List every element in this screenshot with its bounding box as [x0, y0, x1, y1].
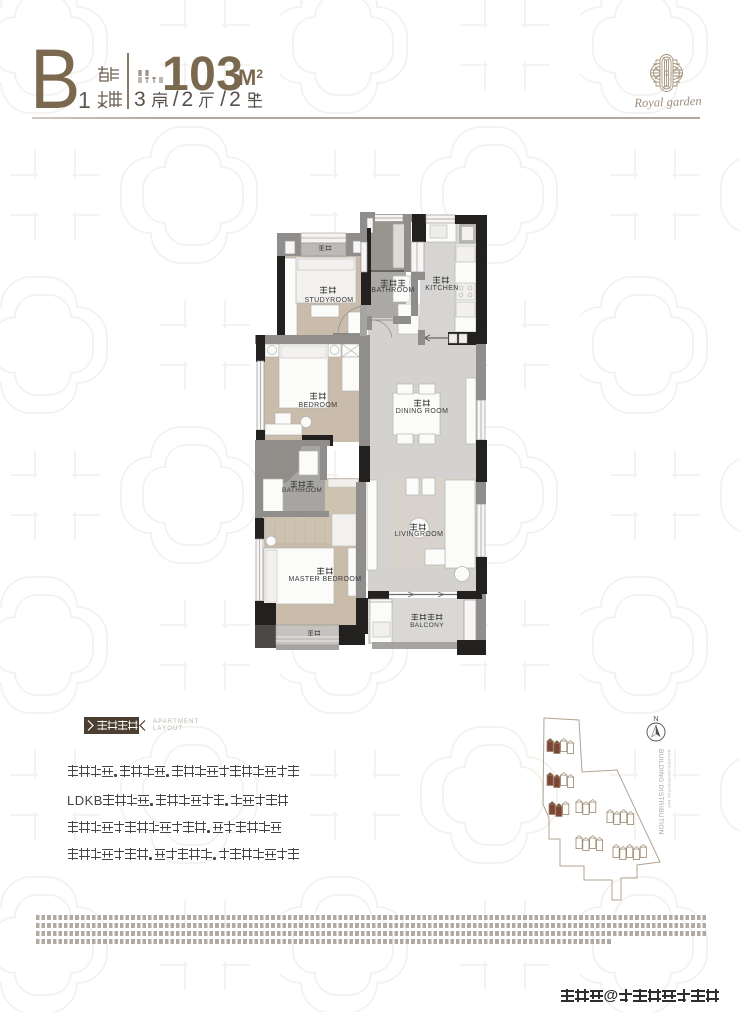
svg-text:N: N — [653, 714, 658, 723]
svg-text:BALCONY: BALCONY — [410, 622, 444, 629]
svg-text:BUILDING DISTRIBUTION: BUILDING DISTRIBUTION — [657, 749, 664, 835]
svg-text:BATHROOM: BATHROOM — [282, 487, 322, 494]
svg-text:BUILDING DISTRIBUTION MAP: BUILDING DISTRIBUTION MAP — [667, 750, 671, 809]
svg-text:MASTER BEDROOM: MASTER BEDROOM — [289, 576, 362, 583]
svg-text:LIVINGROOM: LIVINGROOM — [395, 531, 444, 538]
svg-text:BATHROOM: BATHROOM — [371, 287, 414, 294]
svg-text:KITCHEN: KITCHEN — [425, 285, 459, 292]
svg-text:DINING ROOM: DINING ROOM — [396, 408, 449, 415]
svg-text:BEDROOM: BEDROOM — [299, 402, 338, 409]
svg-text:STUDYROOM: STUDYROOM — [304, 297, 353, 304]
